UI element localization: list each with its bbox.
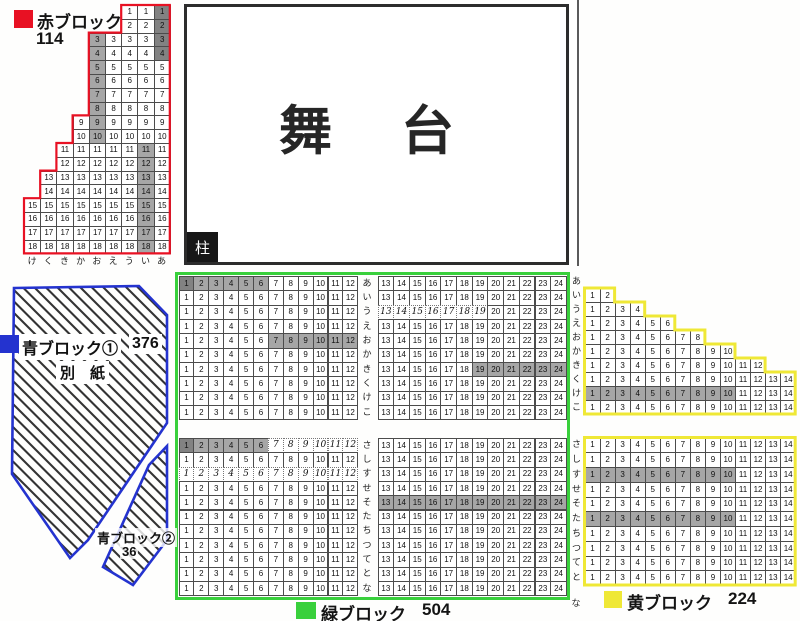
seat-cell: 2 (137, 19, 154, 34)
seat-cell: 10 (313, 362, 329, 377)
seat-cell: 3 (208, 319, 224, 334)
col-label: え (105, 255, 121, 267)
seat-cell: 12 (750, 482, 766, 498)
seat-cell: 7 (121, 88, 138, 103)
seat-cell: 13 (378, 495, 395, 510)
seat-cell: 11 (735, 400, 751, 415)
seat-cell: 8 (690, 452, 706, 468)
seat-cell: 13 (378, 405, 395, 420)
seat-cell: 13 (378, 290, 395, 305)
seat-cell: 3 (208, 510, 224, 525)
seat-cell: 1 (179, 391, 195, 406)
seat-cell: 22 (519, 481, 536, 496)
seat-cell: 13 (378, 552, 395, 567)
seat-cell: 1 (585, 541, 601, 557)
seat-cell: 5 (645, 344, 661, 359)
seat-cell: 6 (660, 570, 676, 586)
seat-cell: 8 (283, 376, 299, 391)
seat-cell: 6 (253, 376, 269, 391)
seat-cell: 4 (630, 358, 646, 373)
seat-cell: 16 (425, 567, 442, 582)
blue-block-2-shape (103, 446, 167, 585)
seat-cell: 2 (600, 467, 616, 483)
seat-cell: 12 (342, 481, 358, 496)
seat-cell: 10 (313, 467, 329, 482)
seat-cell: 23 (535, 552, 552, 567)
seat-cell: 3 (615, 467, 631, 483)
seat-cell: 3 (208, 391, 224, 406)
seat-cell: 18 (456, 538, 473, 553)
seat-cell: 9 (705, 438, 721, 454)
seat-cell: 11 (328, 495, 344, 510)
seat-cell: 17 (73, 226, 90, 241)
seat-cell: 11 (105, 143, 122, 158)
seat-cell: 19 (472, 495, 489, 510)
row-label: て (571, 556, 583, 571)
seat-cell: 6 (253, 405, 269, 420)
seat-cell: 7 (268, 552, 284, 567)
row-label: き (571, 358, 583, 372)
row-label: せ (571, 482, 583, 497)
seat-cell: 1 (154, 5, 171, 20)
seat-cell: 11 (735, 467, 751, 483)
seat-cell: 10 (313, 333, 329, 348)
seat-cell: 2 (193, 524, 209, 539)
seat-cell: 20 (487, 481, 504, 496)
seat-cell: 5 (645, 400, 661, 415)
seat-cell: 9 (705, 511, 721, 527)
seat-cell: 20 (487, 333, 504, 348)
seat-cell: 17 (440, 333, 457, 348)
yellow-trailing-row-label: な (570, 597, 582, 609)
seat-cell: 5 (645, 438, 661, 454)
seat-cell: 9 (705, 452, 721, 468)
seat-cell: 13 (121, 171, 138, 186)
row-label: す (571, 467, 583, 482)
seat-cell: 18 (137, 240, 154, 255)
seat-cell: 6 (660, 511, 676, 527)
seat-cell: 1 (585, 400, 601, 415)
seat-cell: 10 (313, 524, 329, 539)
seat-cell: 10 (313, 538, 329, 553)
seat-cell: 5 (238, 567, 254, 582)
seat-cell: 14 (393, 552, 410, 567)
seat-cell: 6 (660, 467, 676, 483)
seat-cell: 14 (780, 556, 796, 572)
seat-cell: 9 (298, 276, 314, 291)
seat-cell: 22 (519, 276, 536, 291)
seat-cell: 17 (40, 226, 57, 241)
seat-cell: 21 (503, 552, 520, 567)
seat-cell: 6 (660, 330, 676, 345)
seat-cell: 15 (409, 319, 426, 334)
seat-cell: 1 (585, 316, 601, 331)
seat-cell: 21 (503, 510, 520, 525)
seat-cell: 12 (342, 290, 358, 305)
seat-cell: 11 (735, 570, 751, 586)
seat-cell: 19 (472, 481, 489, 496)
seat-cell: 22 (519, 552, 536, 567)
seat-cell: 9 (298, 552, 314, 567)
seat-cell: 9 (705, 344, 721, 359)
seat-cell: 8 (690, 330, 706, 345)
seat-cell: 11 (328, 581, 344, 596)
seat-cell: 3 (154, 33, 171, 48)
seat-cell: 11 (735, 386, 751, 401)
yellow-legend-label: 黄ブロック (627, 589, 712, 614)
seat-cell: 9 (705, 386, 721, 401)
seat-cell: 16 (425, 467, 442, 482)
seat-cell: 12 (342, 362, 358, 377)
seat-cell: 2 (600, 556, 616, 572)
seat-cell: 8 (690, 556, 706, 572)
seat-cell: 11 (735, 452, 751, 468)
seat-cell: 6 (253, 581, 269, 596)
seat-cell: 19 (472, 567, 489, 582)
seat-cell: 12 (342, 319, 358, 334)
seat-cell: 4 (223, 276, 239, 291)
seat-cell: 10 (313, 510, 329, 525)
seat-cell: 14 (105, 184, 122, 199)
seat-cell: 12 (342, 276, 358, 291)
seat-cell: 10 (720, 438, 736, 454)
seat-cell: 2 (193, 538, 209, 553)
seat-cell: 14 (393, 538, 410, 553)
seat-cell: 15 (409, 510, 426, 525)
red-legend: 赤ブロック (14, 8, 122, 33)
seat-cell: 14 (154, 184, 171, 199)
seat-cell: 7 (675, 526, 691, 542)
seat-cell: 6 (660, 526, 676, 542)
seat-cell: 4 (223, 581, 239, 596)
seat-cell: 19 (472, 290, 489, 305)
seat-cell: 3 (615, 570, 631, 586)
seat-cell: 9 (298, 348, 314, 363)
seat-cell: 1 (179, 495, 195, 510)
blue-block-note: 別 紙 (56, 361, 109, 384)
seat-cell: 5 (238, 376, 254, 391)
seat-cell: 16 (425, 319, 442, 334)
green-legend-label: 緑ブロック (321, 600, 406, 621)
seat-cell: 1 (179, 510, 195, 525)
seat-cell: 20 (487, 276, 504, 291)
seat-cell: 19 (472, 452, 489, 467)
seat-cell: 6 (253, 552, 269, 567)
seat-cell: 5 (645, 386, 661, 401)
seat-cell: 13 (378, 348, 395, 363)
seat-cell: 11 (328, 510, 344, 525)
seat-cell: 17 (105, 226, 122, 241)
seat-cell: 4 (223, 305, 239, 320)
seat-cell: 1 (121, 5, 138, 20)
row-label: た (571, 511, 583, 526)
seat-cell: 4 (223, 333, 239, 348)
seat-cell: 7 (268, 290, 284, 305)
seat-cell: 19 (472, 538, 489, 553)
seat-cell: 21 (503, 524, 520, 539)
row-label: か (359, 348, 376, 362)
seat-cell: 14 (780, 497, 796, 513)
seat-cell: 8 (690, 358, 706, 373)
seat-cell: 18 (456, 581, 473, 596)
seat-cell: 13 (378, 305, 395, 320)
seat-cell: 4 (223, 567, 239, 582)
seat-cell: 10 (720, 467, 736, 483)
seat-cell: 4 (137, 46, 154, 61)
seat-cell: 2 (600, 497, 616, 513)
seat-cell: 9 (298, 481, 314, 496)
seat-cell: 17 (440, 467, 457, 482)
seat-cell: 7 (268, 495, 284, 510)
seat-cell: 19 (472, 438, 489, 453)
seat-cell: 7 (268, 348, 284, 363)
seat-cell: 13 (89, 171, 106, 186)
seat-cell: 7 (675, 497, 691, 513)
seat-cell: 17 (440, 362, 457, 377)
seat-cell: 10 (313, 438, 329, 453)
seat-cell: 14 (121, 184, 138, 199)
seat-cell: 5 (238, 276, 254, 291)
seat-cell: 17 (440, 495, 457, 510)
seat-cell: 8 (690, 497, 706, 513)
seat-cell: 4 (223, 438, 239, 453)
seat-cell: 11 (328, 362, 344, 377)
seat-cell: 12 (342, 333, 358, 348)
row-label: き (359, 362, 376, 376)
seat-cell: 15 (409, 538, 426, 553)
seat-cell: 11 (328, 552, 344, 567)
seat-cell: 13 (765, 570, 781, 586)
seat-cell: 17 (440, 567, 457, 582)
seat-cell: 8 (690, 482, 706, 498)
seat-cell: 8 (283, 319, 299, 334)
seat-cell: 6 (660, 344, 676, 359)
blue-legend-label: 青ブロック① (19, 334, 121, 360)
seat-cell: 8 (283, 276, 299, 291)
seat-cell: 15 (409, 290, 426, 305)
seat-cell: 13 (378, 438, 395, 453)
seat-cell: 19 (472, 405, 489, 420)
col-label: く (40, 255, 56, 267)
col-label: う (121, 255, 137, 267)
seat-cell: 8 (283, 405, 299, 420)
seat-cell: 13 (765, 438, 781, 454)
row-label: ち (571, 526, 583, 541)
seat-cell: 10 (313, 567, 329, 582)
seat-cell: 7 (268, 452, 284, 467)
seat-cell: 16 (154, 212, 171, 227)
seat-cell: 21 (503, 362, 520, 377)
seat-cell: 5 (154, 60, 171, 75)
seat-cell: 3 (615, 372, 631, 387)
row-label: う (571, 302, 583, 316)
seat-cell: 3 (208, 552, 224, 567)
seat-cell: 3 (105, 33, 122, 48)
seat-cell: 11 (735, 358, 751, 373)
seat-cell: 8 (690, 400, 706, 415)
seat-cell: 3 (208, 362, 224, 377)
seat-cell: 5 (238, 510, 254, 525)
seat-cell: 20 (487, 438, 504, 453)
col-label: あ (154, 255, 170, 267)
seat-cell: 9 (298, 376, 314, 391)
row-label: あ (571, 274, 583, 288)
seat-cell: 21 (503, 376, 520, 391)
seat-cell: 3 (208, 290, 224, 305)
seat-cell: 5 (238, 495, 254, 510)
seat-cell: 13 (378, 581, 395, 596)
seat-cell: 11 (328, 276, 344, 291)
seat-cell: 10 (720, 482, 736, 498)
row-label: こ (359, 405, 376, 419)
seat-cell: 11 (328, 481, 344, 496)
seat-cell: 6 (253, 438, 269, 453)
seat-cell: 2 (193, 567, 209, 582)
seat-cell: 6 (253, 333, 269, 348)
seat-cell: 22 (519, 305, 536, 320)
seat-cell: 2 (193, 481, 209, 496)
seat-cell: 17 (440, 290, 457, 305)
seat-cell: 9 (705, 526, 721, 542)
row-label: え (359, 319, 376, 333)
seat-cell: 5 (645, 511, 661, 527)
seat-cell: 3 (121, 33, 138, 48)
seat-cell: 24 (550, 276, 567, 291)
seat-cell: 18 (456, 510, 473, 525)
seat-cell: 10 (720, 344, 736, 359)
seat-cell: 8 (283, 362, 299, 377)
row-label: け (359, 391, 376, 405)
seat-cell: 19 (472, 276, 489, 291)
seat-cell: 7 (268, 319, 284, 334)
seat-cell: 5 (238, 538, 254, 553)
seat-cell: 9 (298, 405, 314, 420)
seat-cell: 5 (645, 482, 661, 498)
seat-cell: 16 (425, 348, 442, 363)
seat-cell: 23 (535, 452, 552, 467)
seat-cell: 14 (393, 290, 410, 305)
seat-cell: 22 (519, 362, 536, 377)
row-label: お (359, 333, 376, 347)
seat-cell: 12 (56, 157, 73, 172)
seat-cell: 9 (705, 497, 721, 513)
blue-legend-count: 376 (129, 334, 162, 354)
seat-cell: 12 (137, 157, 154, 172)
seat-cell: 12 (342, 348, 358, 363)
seat-cell: 4 (630, 438, 646, 454)
seat-cell: 8 (137, 102, 154, 117)
seat-cell: 13 (765, 497, 781, 513)
seat-cell: 6 (660, 372, 676, 387)
seat-cell: 15 (56, 198, 73, 213)
seat-cell: 23 (535, 405, 552, 420)
row-label: と (359, 567, 376, 581)
seat-cell: 23 (535, 495, 552, 510)
seat-cell: 19 (472, 552, 489, 567)
seat-cell: 20 (487, 538, 504, 553)
seat-cell: 23 (535, 467, 552, 482)
seat-cell: 22 (519, 581, 536, 596)
seat-cell: 13 (378, 319, 395, 334)
seat-cell: 1 (179, 467, 195, 482)
seat-cell: 16 (73, 212, 90, 227)
seat-cell: 6 (660, 386, 676, 401)
seat-cell: 7 (105, 88, 122, 103)
seat-cell: 18 (154, 240, 171, 255)
seat-cell: 8 (690, 511, 706, 527)
seat-cell: 6 (253, 510, 269, 525)
seat-cell: 10 (720, 511, 736, 527)
seat-cell: 9 (154, 115, 171, 130)
seat-cell: 10 (313, 348, 329, 363)
seat-cell: 12 (750, 556, 766, 572)
seat-cell: 22 (519, 538, 536, 553)
seat-cell: 15 (409, 495, 426, 510)
seat-cell: 17 (121, 226, 138, 241)
seat-cell: 14 (780, 467, 796, 483)
stage: 舞 台 柱 (184, 4, 569, 265)
seat-cell: 1 (585, 497, 601, 513)
seat-cell: 4 (630, 372, 646, 387)
row-label: し (571, 452, 583, 467)
seat-cell: 21 (503, 438, 520, 453)
seat-cell: 7 (675, 452, 691, 468)
seat-cell: 3 (615, 438, 631, 454)
col-label: お (89, 255, 105, 267)
seat-cell: 21 (503, 391, 520, 406)
seat-cell: 2 (600, 452, 616, 468)
seat-cell: 4 (223, 452, 239, 467)
seat-cell: 11 (735, 482, 751, 498)
seat-cell: 23 (535, 391, 552, 406)
row-label: さ (571, 438, 583, 453)
seat-cell: 4 (223, 405, 239, 420)
seat-cell: 13 (378, 276, 395, 291)
seat-cell: 7 (268, 362, 284, 377)
seat-cell: 13 (378, 538, 395, 553)
seat-cell: 2 (154, 19, 171, 34)
seat-cell: 7 (675, 358, 691, 373)
seat-cell: 17 (440, 376, 457, 391)
seat-cell: 21 (503, 467, 520, 482)
seat-cell: 11 (735, 541, 751, 557)
seat-cell: 20 (487, 319, 504, 334)
seat-cell: 16 (425, 524, 442, 539)
seat-cell: 6 (105, 74, 122, 89)
seat-cell: 15 (409, 333, 426, 348)
seat-cell: 20 (487, 552, 504, 567)
seat-cell: 17 (440, 348, 457, 363)
seat-cell: 3 (208, 581, 224, 596)
seat-cell: 2 (600, 541, 616, 557)
row-label: い (359, 290, 376, 304)
seat-cell: 24 (550, 581, 567, 596)
seat-cell: 14 (780, 482, 796, 498)
seat-cell: 8 (283, 452, 299, 467)
seat-cell: 10 (313, 290, 329, 305)
seat-cell: 15 (409, 467, 426, 482)
seat-cell: 4 (630, 316, 646, 331)
seat-cell: 1 (585, 438, 601, 454)
seat-cell: 2 (193, 305, 209, 320)
yellow-legend-swatch (604, 591, 622, 608)
seat-cell: 11 (328, 405, 344, 420)
seat-cell: 10 (313, 405, 329, 420)
seat-cell: 11 (328, 438, 344, 453)
seat-cell: 5 (238, 405, 254, 420)
seat-cell: 20 (487, 290, 504, 305)
seat-cell: 18 (456, 552, 473, 567)
